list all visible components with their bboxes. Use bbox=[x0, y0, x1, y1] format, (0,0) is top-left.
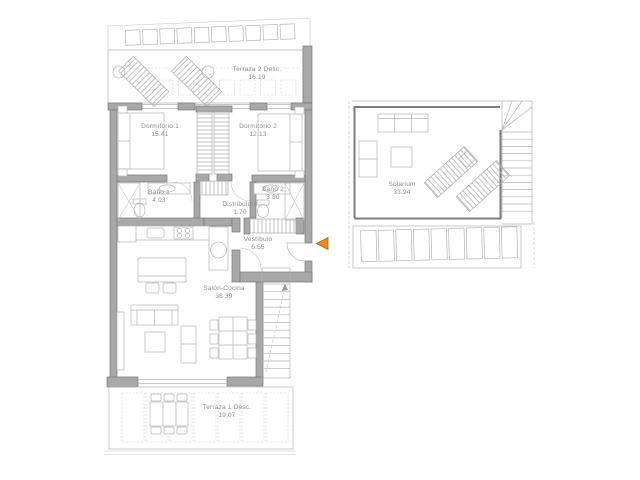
sofa-icon bbox=[378, 114, 428, 132]
window bbox=[138, 380, 227, 384]
outdoor-dining-icon bbox=[150, 394, 188, 434]
bedroom1-furniture bbox=[118, 106, 164, 176]
sink-icon bbox=[147, 228, 164, 238]
room-label-vestibulo: Vestíbulo6.55 bbox=[244, 236, 273, 252]
floor-plan-drawing bbox=[0, 0, 640, 480]
terrace2-pergola bbox=[108, 18, 310, 50]
terrace2 bbox=[108, 46, 312, 106]
entry-door-icon bbox=[287, 243, 305, 261]
solarium-furniture bbox=[359, 114, 510, 211]
table-icon bbox=[391, 147, 412, 167]
cooktop-icon bbox=[174, 227, 193, 239]
room-label-salon: Salón-Cocina36.39 bbox=[203, 285, 244, 301]
oven-column-icon bbox=[209, 227, 228, 270]
solarium-pergola bbox=[353, 222, 534, 268]
solarium-unit bbox=[349, 101, 534, 268]
sideboard-icon bbox=[117, 312, 124, 370]
room-label-solarium: Solarium33.94 bbox=[388, 181, 415, 197]
lounger-icon bbox=[119, 56, 169, 106]
bedroom2-furniture bbox=[258, 107, 304, 178]
room-label-terraza1: Terraza 1 Desc.19.07 bbox=[203, 404, 252, 420]
terrace1 bbox=[104, 387, 296, 455]
coffee-table-icon bbox=[145, 332, 165, 352]
room-label-distribuidor: Distribuidor1.70 bbox=[222, 201, 257, 217]
kitchen-island-icon bbox=[138, 258, 186, 282]
terrace2-deck-squares bbox=[158, 80, 296, 95]
room-label-dormitorio1: Dormitorio 115.41 bbox=[141, 123, 179, 139]
room-label-dormitorio2: Dormitorio 212.13 bbox=[239, 123, 277, 139]
floor-plan-page: Terraza 2 Desc.16.19 Dormitorio 115.41 D… bbox=[0, 0, 640, 480]
planter-icon bbox=[202, 66, 214, 78]
stairs-solarium bbox=[502, 101, 532, 211]
stairs-left-unit bbox=[262, 268, 290, 378]
room-label-bano2: Baño 23.80 bbox=[262, 186, 284, 202]
kitchen bbox=[118, 226, 228, 293]
wardrobe-icon bbox=[197, 112, 229, 195]
tv-unit-icon bbox=[181, 326, 196, 363]
room-label-bano1: Baño 14.03 bbox=[148, 189, 170, 205]
room-label-terraza2: Terraza 2 Desc.16.19 bbox=[233, 66, 282, 82]
entrance-arrow-icon bbox=[317, 238, 329, 250]
living-room-furniture bbox=[117, 305, 256, 370]
